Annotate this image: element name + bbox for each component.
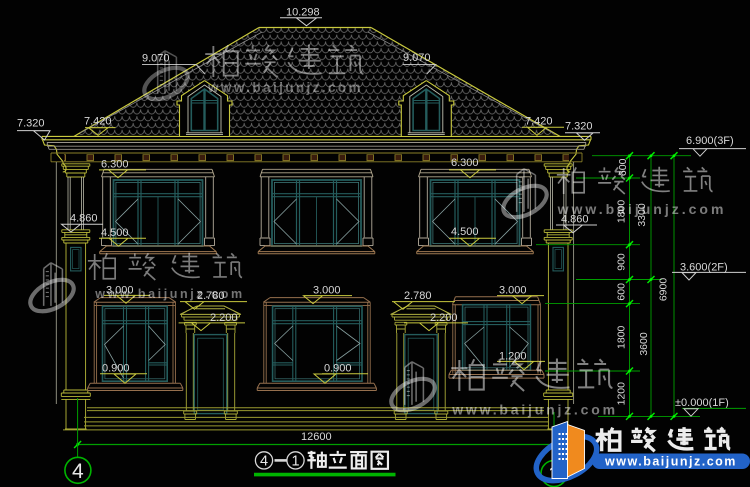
svg-text:9.070: 9.070 xyxy=(403,52,431,64)
svg-text:0.900: 0.900 xyxy=(102,363,130,375)
svg-text:www.baijunjz.com: www.baijunjz.com xyxy=(604,455,737,469)
svg-text:3.000: 3.000 xyxy=(499,285,527,297)
svg-text:900: 900 xyxy=(616,253,628,271)
svg-text:3.600(2F): 3.600(2F) xyxy=(680,262,728,274)
svg-text:6.900(3F): 6.900(3F) xyxy=(686,135,734,147)
svg-text:4.500: 4.500 xyxy=(101,227,129,239)
svg-text:4: 4 xyxy=(72,460,84,483)
svg-text:7.420: 7.420 xyxy=(84,116,112,128)
svg-text:3.000: 3.000 xyxy=(313,285,341,297)
svg-text:7.420: 7.420 xyxy=(525,116,553,128)
svg-text:4.500: 4.500 xyxy=(451,226,479,238)
svg-text:1800: 1800 xyxy=(616,325,628,349)
svg-text:12600: 12600 xyxy=(301,431,332,443)
svg-text:7.320: 7.320 xyxy=(17,118,45,130)
svg-text:1: 1 xyxy=(291,454,299,470)
svg-text:2.200: 2.200 xyxy=(210,312,238,324)
svg-text:www.baijunjz.com: www.baijunjz.com xyxy=(451,402,618,418)
svg-text:www.baijunjz.com: www.baijunjz.com xyxy=(557,201,727,217)
svg-text:www.baijunjz.com: www.baijunjz.com xyxy=(207,80,363,95)
svg-text:4: 4 xyxy=(260,454,268,470)
svg-text:6.300: 6.300 xyxy=(451,157,479,169)
svg-text:www.baijunjz.com: www.baijunjz.com xyxy=(94,287,244,301)
svg-text:3600: 3600 xyxy=(638,332,650,356)
svg-text:1.200: 1.200 xyxy=(499,351,527,363)
svg-text:6900: 6900 xyxy=(658,278,670,302)
svg-text:0.900: 0.900 xyxy=(324,363,352,375)
svg-text:4.860: 4.860 xyxy=(70,213,98,225)
svg-text:2.200: 2.200 xyxy=(430,312,458,324)
svg-text:600: 600 xyxy=(616,283,628,301)
svg-text:600: 600 xyxy=(617,158,629,176)
svg-text:10.298: 10.298 xyxy=(286,7,320,19)
svg-text:±0.000(1F): ±0.000(1F) xyxy=(675,397,729,409)
svg-text:7.320: 7.320 xyxy=(565,121,593,133)
svg-text:2.780: 2.780 xyxy=(404,290,432,302)
svg-text:6.300: 6.300 xyxy=(101,159,129,171)
